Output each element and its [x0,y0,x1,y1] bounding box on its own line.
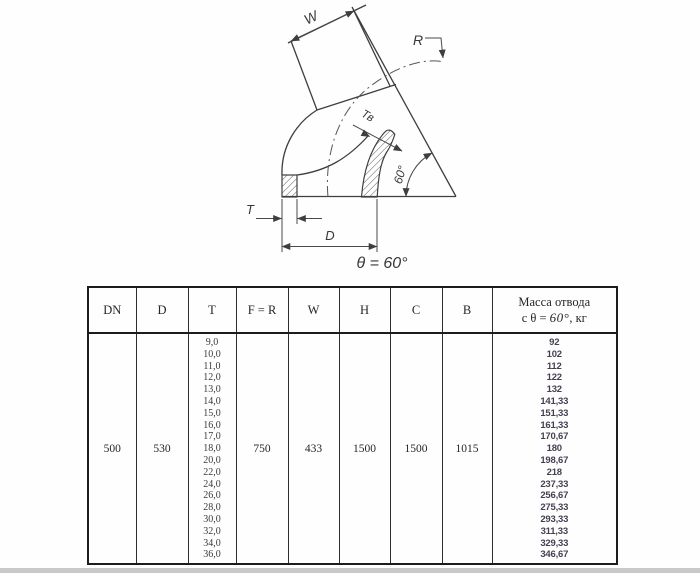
t-values-list: 9,010,011,012,013,014,015,016,017,018,02… [189,337,236,561]
table-cell-line: 34,0 [189,538,236,550]
table-cell-line: 16,0 [189,420,236,432]
col-header-dn: DN [88,287,136,333]
radius-leader-line [425,38,443,58]
col-header-mass: Масса отвода с θ = 60°, кг [492,287,617,333]
table-cell-line: 28,0 [189,502,236,514]
col-header-c: C [390,287,442,333]
mass-values-list: 92102112122132141,33151,33161,33170,6718… [493,337,617,561]
dimension-w-line [291,11,354,41]
table-cell-line: 20,0 [189,455,236,467]
cell-w: 433 [288,333,339,564]
table-cell-line: 18,0 [189,443,236,455]
radius-label: R [413,32,423,48]
table-cell-line: 311,33 [493,526,617,538]
table-cell-line: 141,33 [493,396,617,408]
cell-dn: 500 [88,333,136,564]
table-cell-line: 9,0 [189,337,236,349]
table-cell-line: 198,67 [493,455,617,467]
table-cell-line: 237,33 [493,479,617,491]
pipe-left-edge [291,41,317,110]
table-cell-line: 24,0 [189,479,236,491]
table-cell-line: 346,67 [493,549,617,561]
theta-caption: θ = 60° [356,255,408,272]
table-cell-line: 32,0 [189,526,236,538]
table-cell-line: 36,0 [189,549,236,561]
cell-d: 530 [136,333,188,564]
inner-wall-section [362,130,395,197]
inner-thickness-label: Тв [359,108,376,125]
col-header-b: B [442,287,492,333]
table-cell-line: 30,0 [189,514,236,526]
bend-centerline [327,61,444,197]
table-cell-line: 161,33 [493,420,617,432]
pipe-right-edge [354,11,390,86]
table-cell-line: 275,33 [493,502,617,514]
table-cell-line: 13,0 [189,384,236,396]
cell-h: 1500 [339,333,390,564]
cell-mass-values: 92102112122132141,33151,33161,33170,6718… [492,333,617,564]
table-data-row: 500 530 9,010,011,012,013,014,015,016,01… [88,333,617,564]
table-cell-line: 15,0 [189,408,236,420]
table-cell-line: 26,0 [189,490,236,502]
section-boundary-curve [297,136,368,175]
dimension-w-label: W [301,7,321,28]
angle-dimension-arc [406,153,432,197]
col-header-w: W [288,287,339,333]
table-cell-line: 11,0 [189,361,236,373]
table-cell-line: 170,67 [493,431,617,443]
mass-header-angle: 60° [550,310,570,325]
col-header-fr: F = R [236,287,288,333]
table-cell-line: 180 [493,443,617,455]
dimension-d-label: D [325,228,334,243]
dimensions-table: DN D T F = R W H C B Масса отвода с θ = … [87,286,618,565]
table-cell-line: 132 [493,384,617,396]
dimension-t-label: T [246,202,255,217]
table-cell-line: 102 [493,349,617,361]
table-cell-line: 17,0 [189,431,236,443]
table-cell-line: 112 [493,361,617,373]
table-cell-line: 293,33 [493,514,617,526]
table-cell-line: 12,0 [189,372,236,384]
cell-t-values: 9,010,011,012,013,014,015,016,017,018,02… [188,333,236,564]
col-header-t: T [188,287,236,333]
table-cell-line: 10,0 [189,349,236,361]
table-cell-line: 256,67 [493,490,617,502]
mass-header-line2: с θ = 60°, кг [493,310,617,326]
table-cell-line: 92 [493,337,617,349]
table-header-row: DN D T F = R W H C B Масса отвода с θ = … [88,287,617,333]
mass-header-suffix: , кг [569,311,586,325]
page-bottom-edge [0,568,700,573]
cell-c: 1500 [390,333,442,564]
angle-value-label: 60° [391,164,410,186]
table-cell-line: 122 [493,372,617,384]
col-header-d: D [136,287,188,333]
mass-header-line1: Масса отвода [493,295,617,310]
table-cell-line: 14,0 [189,396,236,408]
outer-wall-section [282,175,297,197]
catalog-page: W R Тв 60° T D θ = 60° DN D T F = R W H … [0,0,700,573]
col-header-h: H [339,287,390,333]
mass-header-prefix: с θ = [522,311,550,325]
table-cell-line: 151,33 [493,408,617,420]
table-cell-line: 329,33 [493,538,617,550]
elbow-joint-line [317,85,396,111]
table-cell-line: 218 [493,467,617,479]
table-cell-line: 22,0 [189,467,236,479]
cell-fr: 750 [236,333,288,564]
cell-b: 1015 [442,333,492,564]
elbow-outer-arc [282,110,317,175]
elbow-technical-drawing: W R Тв 60° T D θ = 60° [0,0,700,284]
